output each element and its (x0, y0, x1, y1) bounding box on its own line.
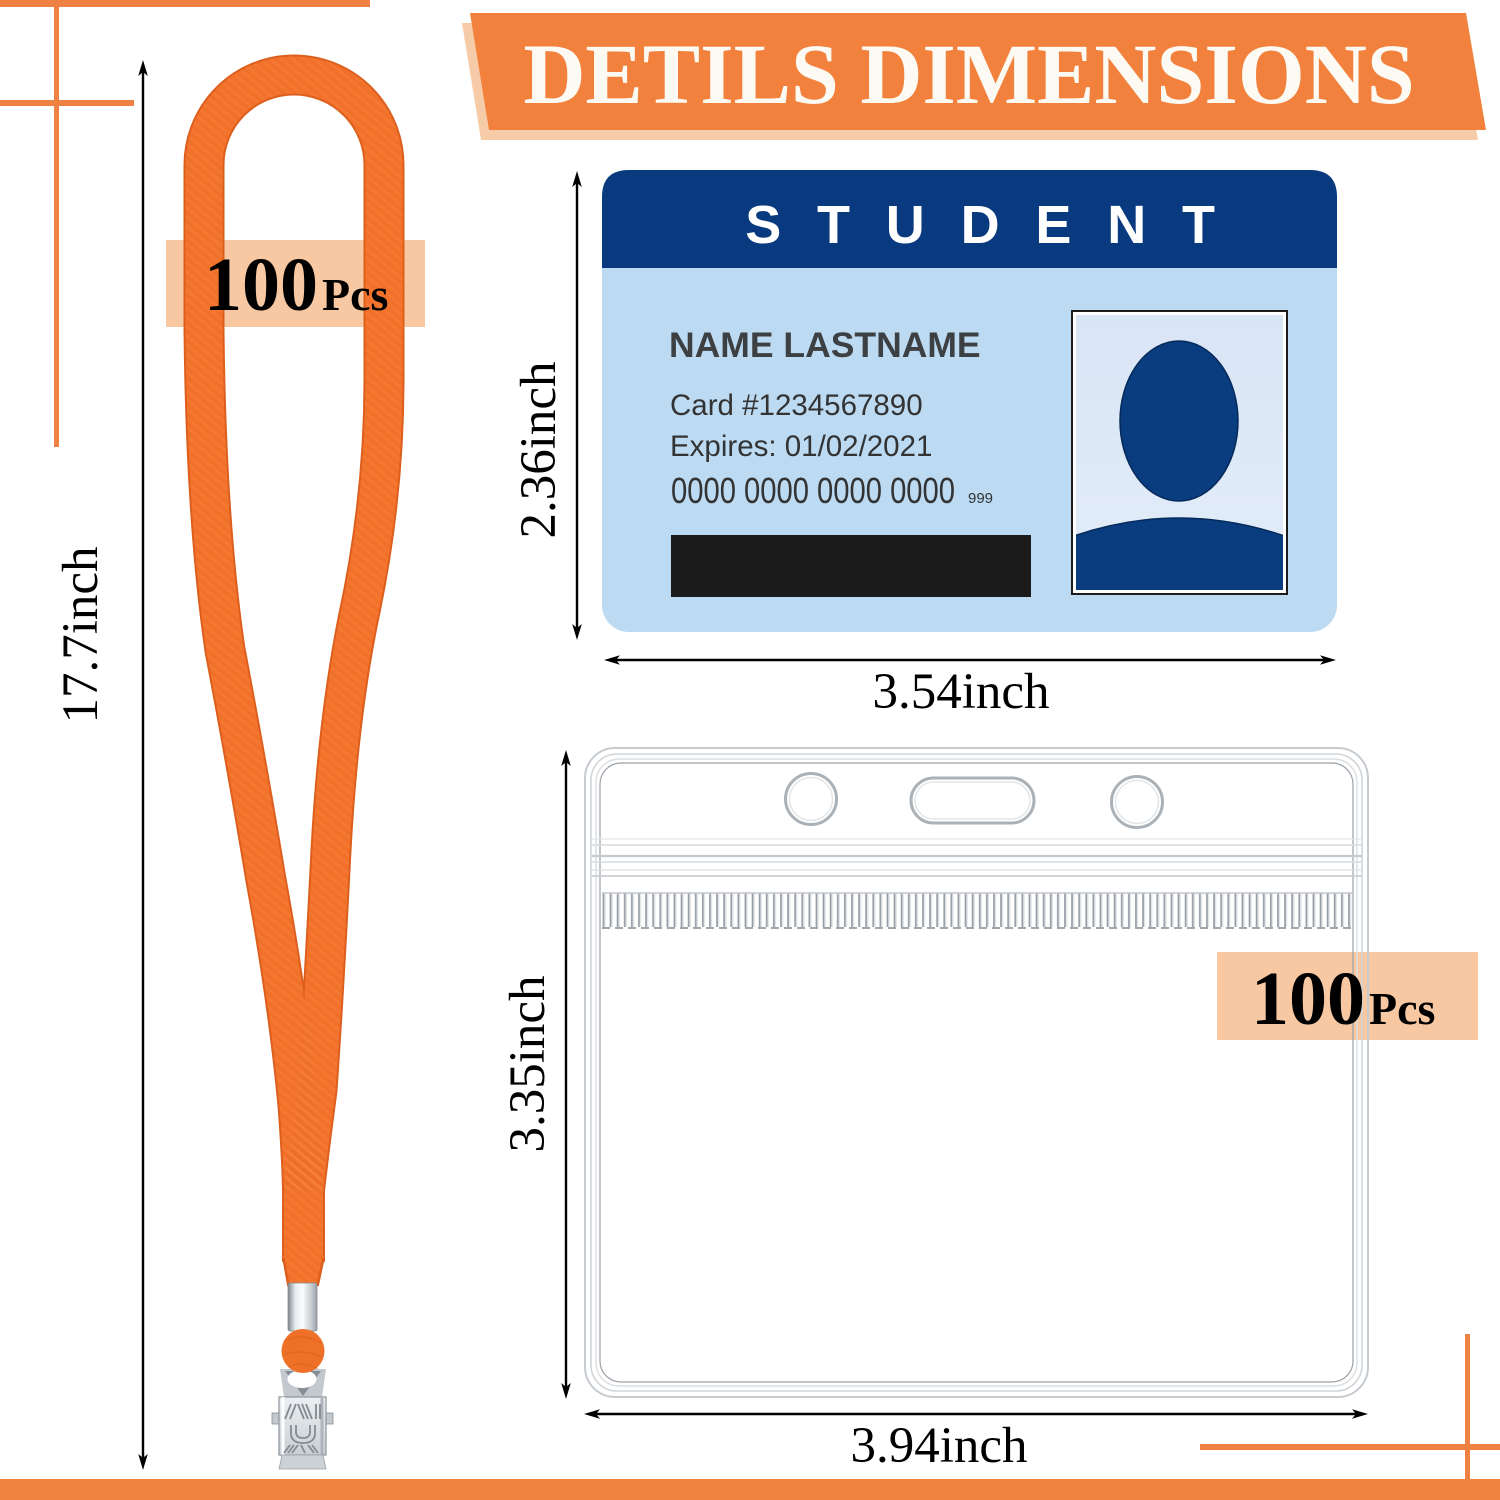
svg-text:STUDENT: STUDENT (745, 195, 1251, 255)
svg-text:0000 0000 0000 0000: 0000 0000 0000 0000 (671, 470, 955, 511)
svg-text:999: 999 (968, 490, 993, 507)
svg-text:17.7inch: 17.7inch (53, 546, 109, 723)
svg-text:Expires: 01/02/2021: Expires: 01/02/2021 (670, 430, 932, 463)
svg-text:3.54inch: 3.54inch (872, 664, 1049, 720)
svg-text:3.35inch: 3.35inch (500, 975, 556, 1152)
svg-text:3.94inch: 3.94inch (850, 1418, 1027, 1474)
svg-text:DETILS DIMENSIONS: DETILS DIMENSIONS (523, 26, 1414, 122)
svg-text:NAME LASTNAME: NAME LASTNAME (669, 325, 981, 365)
svg-text:2.36inch: 2.36inch (511, 361, 567, 538)
svg-text:Card #1234567890: Card #1234567890 (670, 389, 923, 422)
